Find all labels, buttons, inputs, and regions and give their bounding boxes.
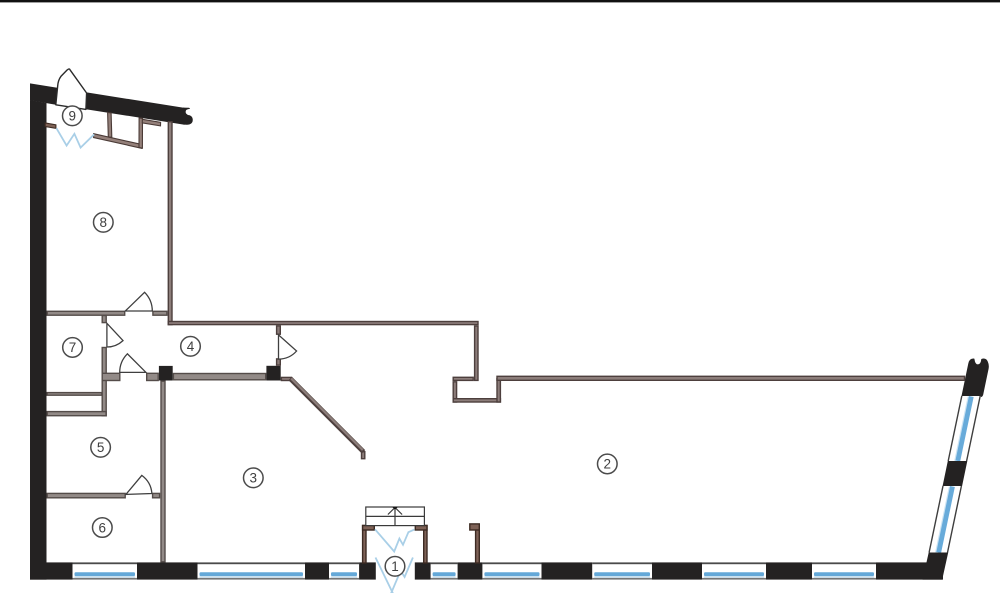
svg-text:8: 8	[100, 215, 108, 230]
svg-text:5: 5	[97, 440, 105, 455]
svg-text:1: 1	[391, 559, 399, 574]
svg-text:4: 4	[187, 339, 195, 354]
svg-text:2: 2	[604, 457, 612, 472]
svg-text:7: 7	[69, 340, 77, 355]
svg-text:3: 3	[250, 471, 258, 486]
svg-text:6: 6	[99, 520, 107, 535]
svg-text:9: 9	[69, 109, 77, 124]
